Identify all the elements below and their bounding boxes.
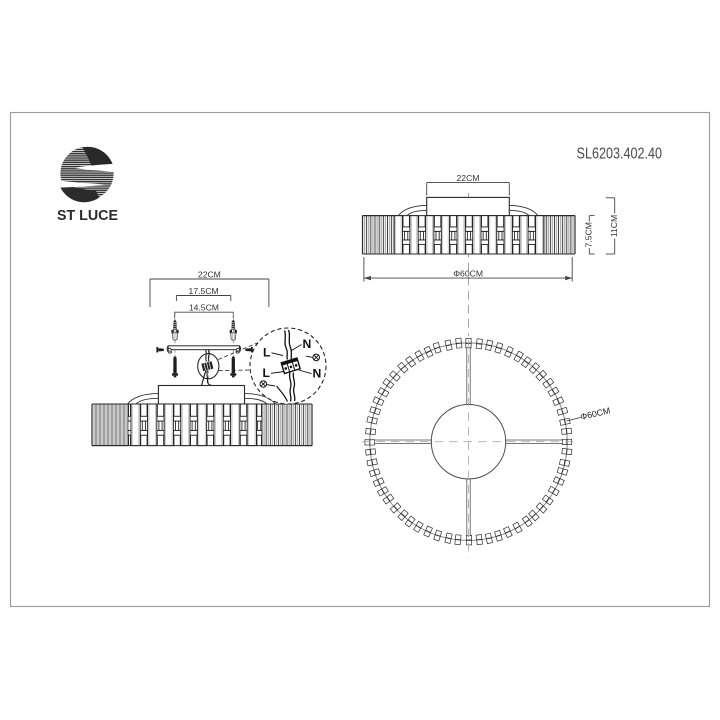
svg-text:ST LUCE: ST LUCE	[57, 208, 118, 224]
svg-text:7.5CM: 7.5CM	[584, 222, 594, 247]
svg-text:N: N	[313, 367, 322, 381]
svg-text:14.5CM: 14.5CM	[189, 303, 219, 313]
svg-text:11CM: 11CM	[609, 215, 619, 237]
svg-text:17.5CM: 17.5CM	[189, 286, 219, 296]
svg-text:L: L	[263, 345, 271, 359]
svg-text:22CM: 22CM	[198, 269, 221, 279]
svg-text:SL6203.402.40: SL6203.402.40	[577, 146, 663, 163]
svg-text:Φ60CM: Φ60CM	[579, 405, 611, 422]
svg-text:L: L	[263, 366, 271, 380]
svg-text:N: N	[303, 337, 312, 351]
svg-text:22CM: 22CM	[457, 173, 480, 183]
svg-text:Φ60CM: Φ60CM	[453, 269, 483, 279]
